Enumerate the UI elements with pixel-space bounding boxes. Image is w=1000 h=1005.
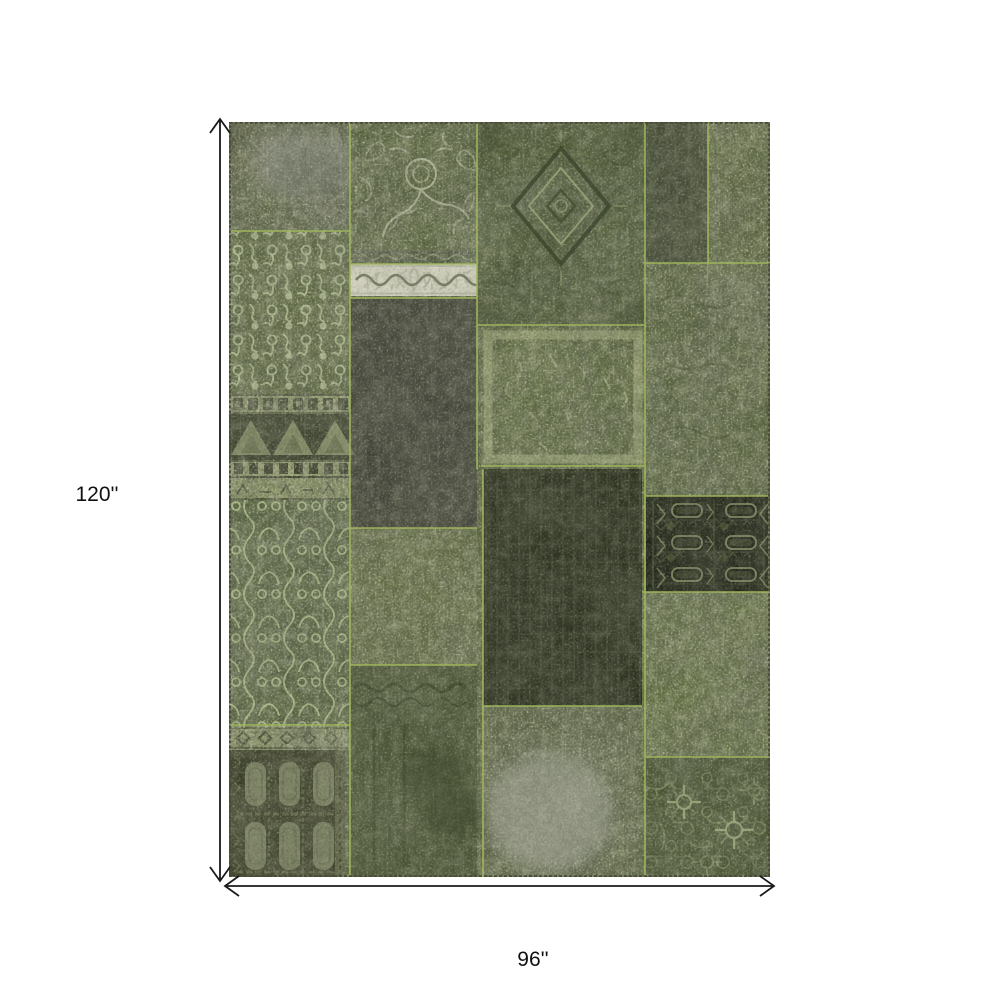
svg-text:120'': 120'' [75,483,118,506]
svg-text:96'': 96'' [517,948,548,971]
